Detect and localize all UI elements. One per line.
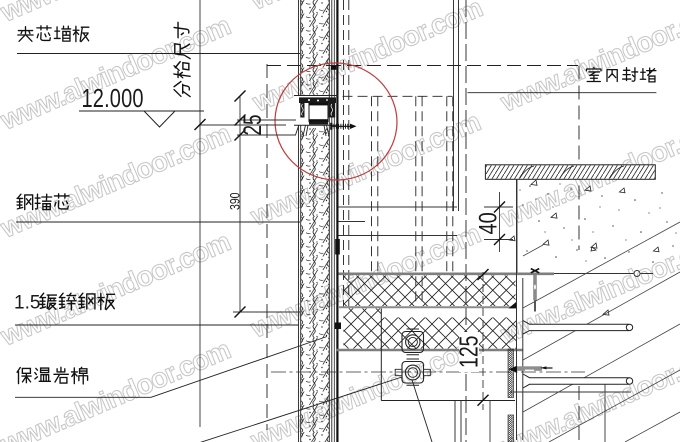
svg-text:125: 125 <box>454 335 483 368</box>
svg-text:12.000: 12.000 <box>82 84 144 113</box>
svg-text:40: 40 <box>474 212 502 234</box>
svg-text:1.5: 1.5 <box>14 293 40 314</box>
svg-text:390: 390 <box>227 192 243 210</box>
svg-text:25: 25 <box>239 114 267 135</box>
